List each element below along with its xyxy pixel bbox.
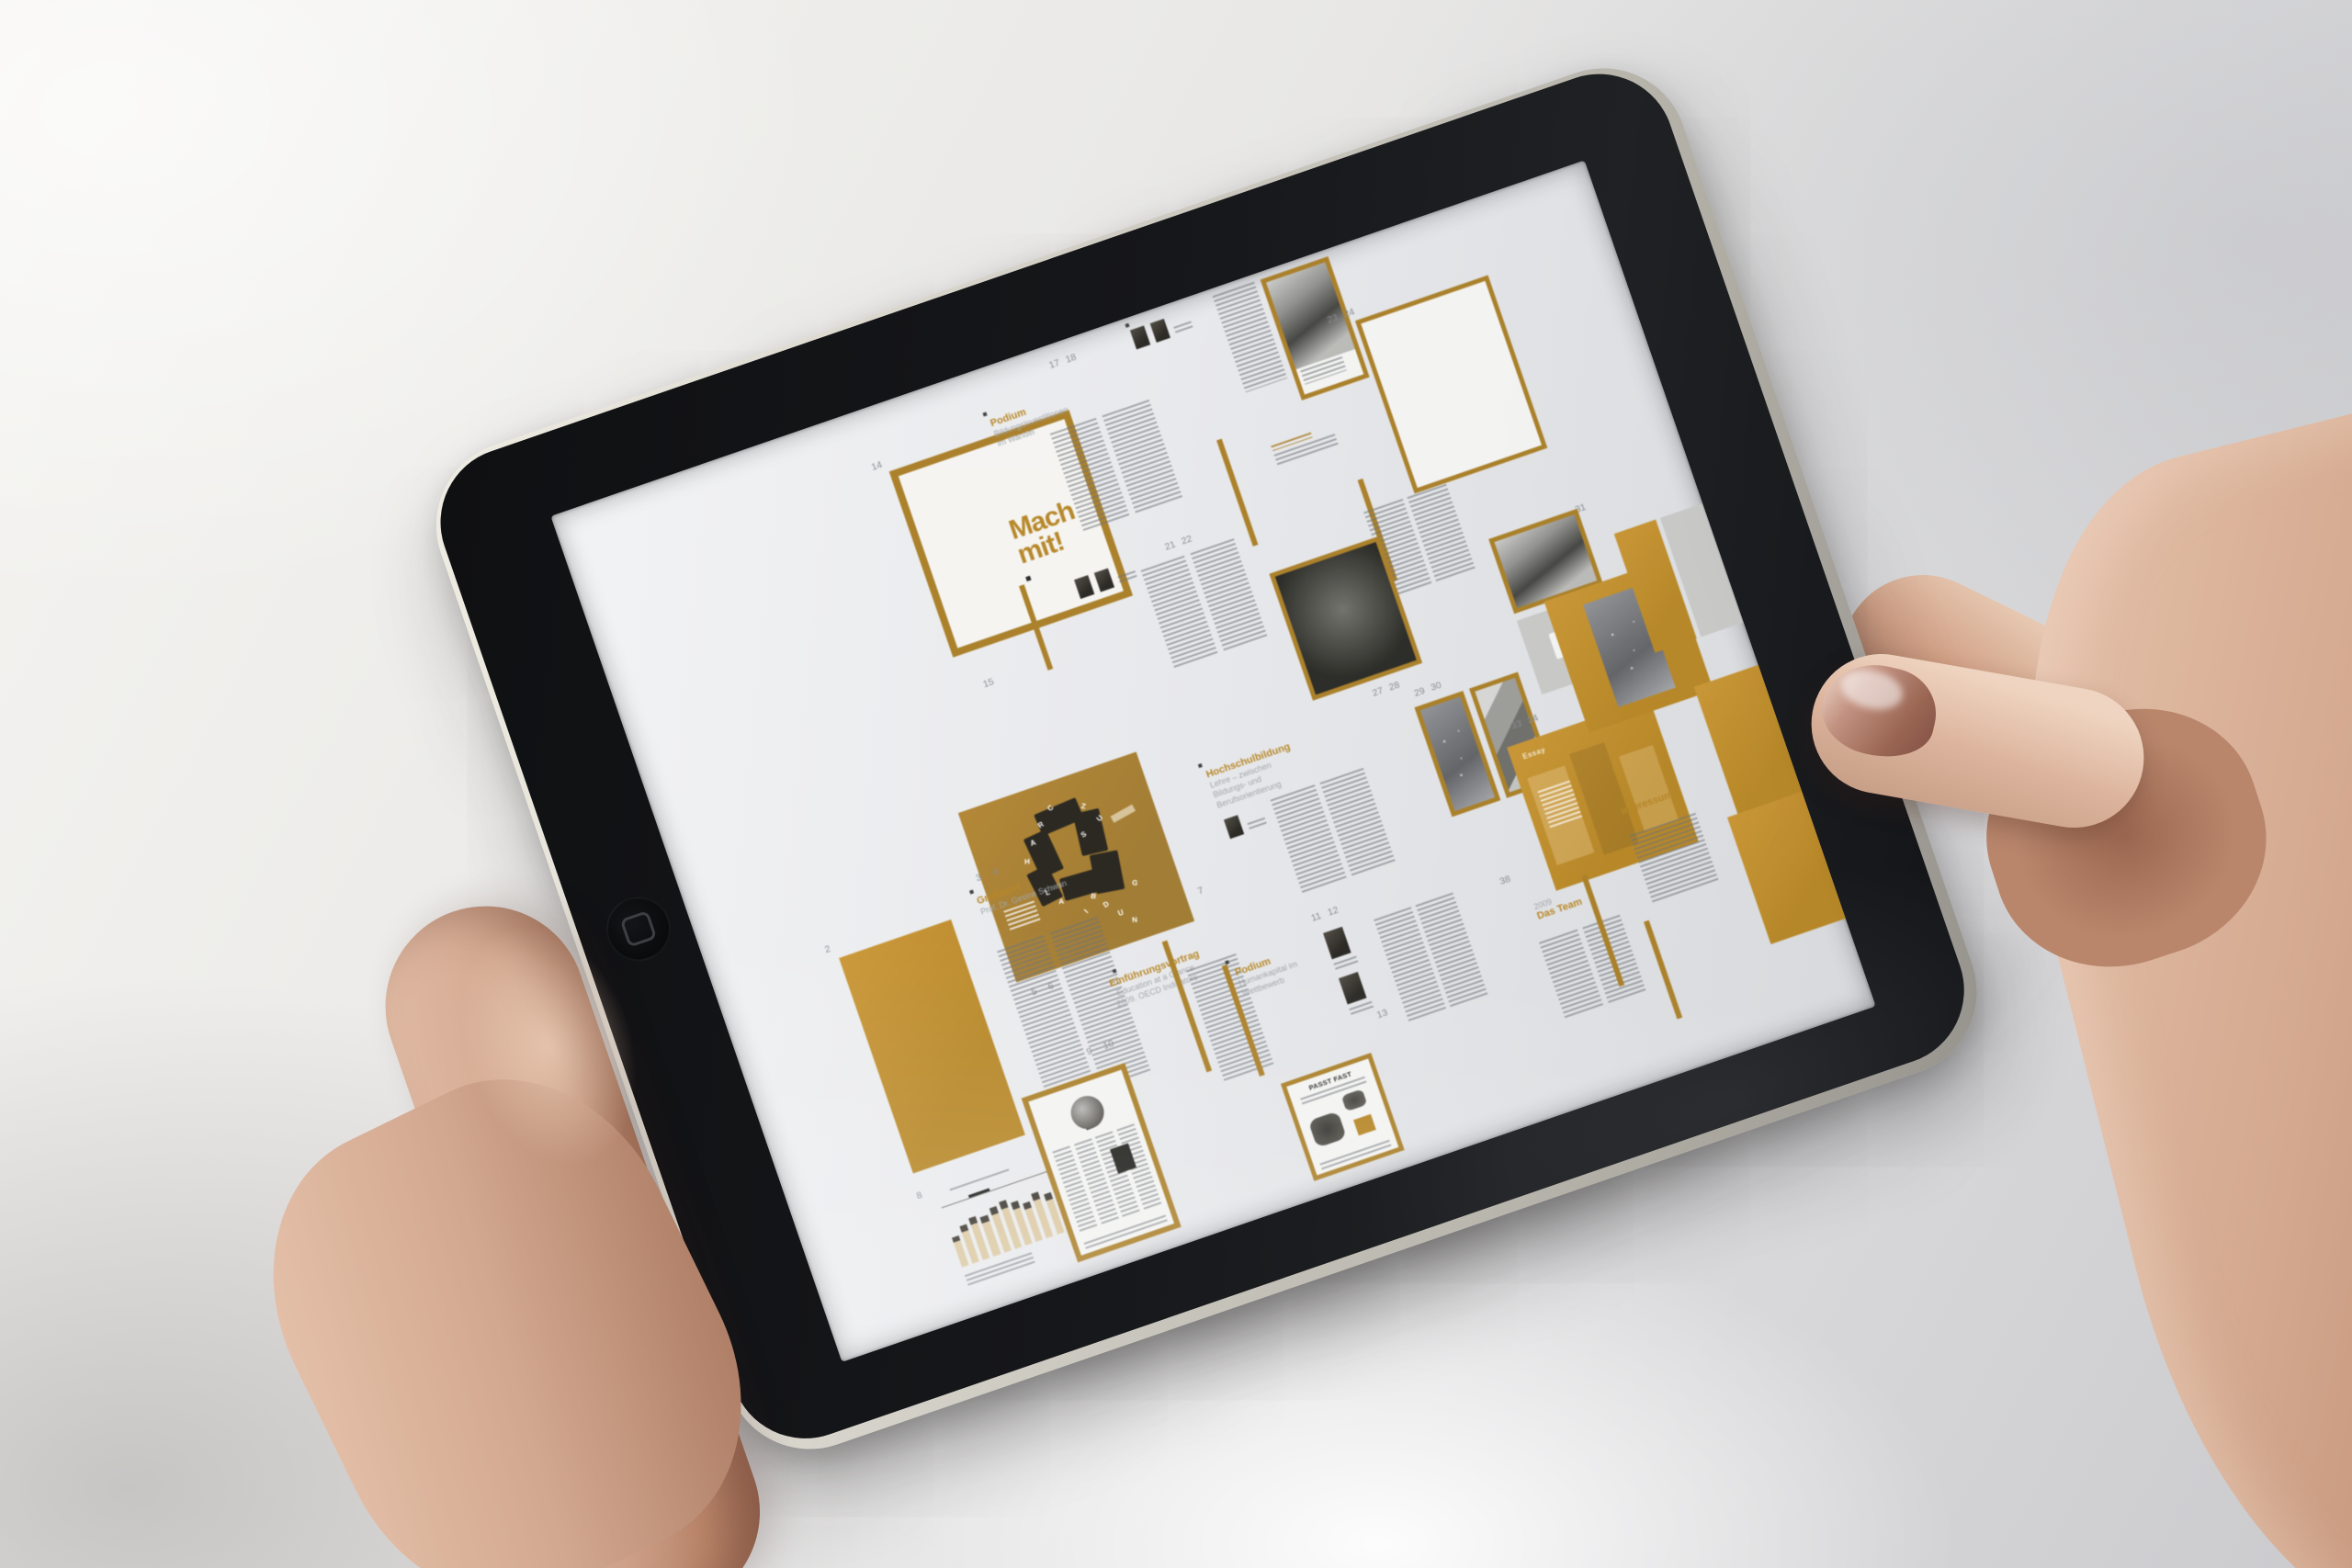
scattered-letter: B — [1090, 891, 1096, 900]
poster-title-line: mit! — [1014, 544, 1023, 568]
page-number: 7 — [1196, 885, 1204, 897]
price-box — [1353, 1113, 1377, 1135]
photo-thumbnail — [1323, 927, 1351, 960]
table-group — [1072, 808, 1107, 856]
photo-thumbnail — [1339, 972, 1367, 1005]
orange-spread-label: Essay — [1521, 746, 1546, 761]
text-columns — [1539, 915, 1645, 1019]
page-number: 12 — [1326, 904, 1340, 918]
advert-page: PASST FAST — [1281, 1053, 1405, 1181]
page-number: 30 — [1430, 680, 1443, 694]
framed-page — [1355, 275, 1547, 494]
page-number: 15 — [982, 676, 996, 690]
collage-art — [1445, 367, 1453, 392]
tan-dash — [1110, 805, 1135, 823]
photo-stage: 14Machmit!15PodiumBildungsinvestitionen … — [0, 0, 2352, 1568]
scattered-letter: Z — [1080, 802, 1086, 811]
car-image — [1341, 1089, 1368, 1111]
page-number: 11 — [1309, 910, 1322, 924]
bullet-marker — [1198, 763, 1203, 768]
section-heading: PodiumHumankapital im Wettbewerb — [1234, 941, 1323, 998]
photo-thumbnail — [1129, 325, 1149, 349]
scattered-letter: U — [1117, 908, 1125, 918]
globe-image — [1067, 1091, 1109, 1134]
page-footer-lines — [1454, 392, 1456, 396]
scattered-letter: D — [1102, 900, 1111, 910]
page-number: 21 — [1163, 538, 1177, 552]
photo-caption — [1350, 1001, 1375, 1017]
photo-caption — [1248, 818, 1268, 832]
page-number: 18 — [1064, 351, 1078, 365]
home-button[interactable] — [597, 888, 679, 970]
scattered-letter: I — [1083, 908, 1091, 915]
bullet-marker — [968, 889, 973, 894]
orange-page — [1727, 790, 1849, 943]
page-number: 13 — [1375, 1007, 1389, 1021]
page-number: 28 — [1387, 679, 1401, 693]
page-number: 38 — [1498, 874, 1512, 887]
chart-title-line — [949, 1168, 1010, 1193]
spine-bar — [1216, 438, 1258, 546]
bullet-marker — [982, 412, 987, 416]
text-columns — [1271, 768, 1396, 893]
photo-thumbnails — [1224, 807, 1268, 840]
bullet-marker — [1125, 323, 1130, 328]
page-number: 29 — [1413, 685, 1427, 699]
orange-spread — [1694, 658, 1821, 813]
spread-with-photo — [1213, 256, 1374, 427]
chart-rule-segment — [968, 1189, 989, 1199]
spine-bar — [1643, 919, 1681, 1019]
news-columns — [1052, 1123, 1161, 1232]
orange-page — [840, 919, 1025, 1174]
scattered-letter: A — [1058, 897, 1065, 905]
page-number: 17 — [1047, 356, 1061, 370]
text-columns — [1374, 893, 1488, 1021]
photo-thumbnails — [1129, 310, 1193, 349]
photo-thumbnail — [1224, 815, 1244, 839]
advert-smallprint — [1320, 1140, 1392, 1170]
scattered-letter: G — [1131, 879, 1138, 888]
photo-caption — [1334, 956, 1360, 972]
page-number: 8 — [915, 1190, 923, 1201]
scattered-letter: N — [1132, 915, 1138, 923]
text-columns — [1140, 538, 1267, 668]
photo-caption — [1173, 321, 1193, 335]
page-number: 24 — [1342, 307, 1356, 321]
page-number: 14 — [870, 459, 884, 473]
home-button-icon — [620, 910, 658, 948]
page-number: 34 — [1526, 713, 1540, 727]
page-header-lines — [1444, 364, 1445, 367]
poster-footer-text — [1027, 581, 1028, 583]
page-number: 2 — [823, 943, 831, 955]
car-image — [1308, 1111, 1347, 1148]
page-number: 27 — [1371, 684, 1385, 698]
photo-thumbnail — [1149, 319, 1170, 343]
heading-placeholder — [1272, 425, 1340, 467]
poster-dot — [1025, 575, 1031, 581]
page-number: 22 — [1180, 533, 1193, 547]
photo-thumbnails — [1323, 926, 1376, 1024]
scattered-letter: H — [1024, 857, 1031, 865]
